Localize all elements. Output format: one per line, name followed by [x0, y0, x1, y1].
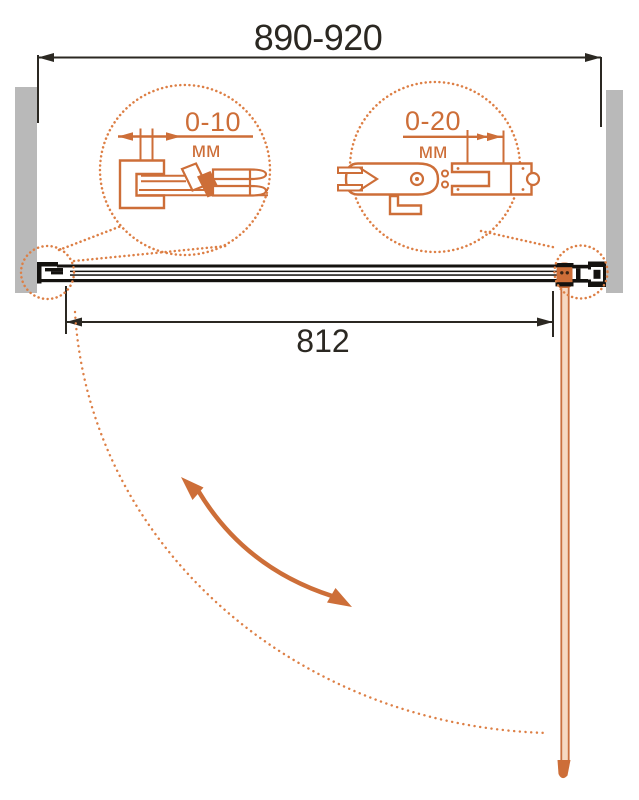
right-detail-dot-2 [457, 188, 460, 191]
left-detail-arrow-right [166, 132, 181, 141]
right-bracket-opening [588, 270, 592, 280]
right-detail-pivot-2 [442, 182, 448, 188]
right-detail-angle-bracket [390, 196, 421, 214]
left-detail-unit-label: мм [192, 139, 221, 162]
left-callout-line-1 [59, 227, 120, 251]
right-bracket-insert [594, 270, 601, 279]
left-bracket-tongue [45, 268, 63, 271]
swing-direction-arrow [181, 477, 352, 607]
left-bracket-screw [51, 271, 63, 274]
left-bracket-side [37, 262, 42, 284]
diagram-svg: 890-920 812 [0, 0, 639, 800]
right-detail-dot-3 [522, 167, 525, 170]
right-detail-unit-label: мм [419, 140, 448, 163]
left-detail-arrow-left [118, 132, 133, 141]
door-top-edge [57, 265, 557, 268]
right-callout-line [481, 231, 557, 248]
right-detail-screw-center [415, 177, 419, 181]
open-door-handle-end [558, 760, 571, 778]
right-detail-pivot-1 [442, 171, 448, 177]
right-detail-range-label: 0-20 [405, 106, 461, 136]
right-detail-arrow-1 [487, 133, 502, 142]
left-detail-wall-profile [120, 161, 164, 209]
swing-arrow-curve [199, 492, 332, 596]
right-detail-arrow-2 [477, 133, 488, 140]
right-detail-dot-4 [522, 188, 525, 191]
right-bracket-top-bar [571, 265, 588, 269]
door-dim-arrow-left [66, 318, 82, 327]
hinge-pin-2 [566, 271, 569, 274]
technical-drawing-page: 890-920 812 [0, 0, 639, 800]
right-wall-bracket [571, 262, 606, 288]
top-dim-arrow-left [38, 53, 54, 62]
top-dim-arrow-right [585, 53, 601, 62]
hinge-pin-1 [560, 271, 563, 274]
right-detail-clamp-lip-top [338, 168, 362, 174]
right-bracket-bottom-bar [571, 279, 588, 283]
door-glass-line-1 [70, 271, 557, 273]
swing-arrow-head-down [327, 588, 352, 607]
left-wall [15, 87, 37, 293]
top-dimension [38, 53, 601, 127]
door-open-position [558, 288, 571, 778]
left-detail-range-label: 0-10 [185, 107, 241, 137]
right-bracket-connector [576, 268, 581, 279]
left-detail-fork-upper [213, 170, 266, 180]
right-detail-dot-1 [457, 167, 460, 170]
door-width-label: 812 [296, 323, 349, 359]
left-detail-fork-lower [213, 186, 266, 196]
door-bottom-edge [37, 279, 557, 282]
right-detail-profile-notch [527, 173, 539, 185]
right-detail-wall-profile [452, 164, 532, 195]
right-detail-clamp-lip-bottom [338, 185, 362, 191]
hinge-top-cap [556, 263, 574, 267]
door-dim-arrow-right [537, 318, 553, 327]
overall-width-label: 890-920 [254, 17, 383, 58]
door-glass-line-2 [70, 274, 557, 276]
door-swing-arc [75, 312, 547, 733]
right-wall [606, 90, 623, 293]
door-closed-profile [37, 262, 606, 288]
